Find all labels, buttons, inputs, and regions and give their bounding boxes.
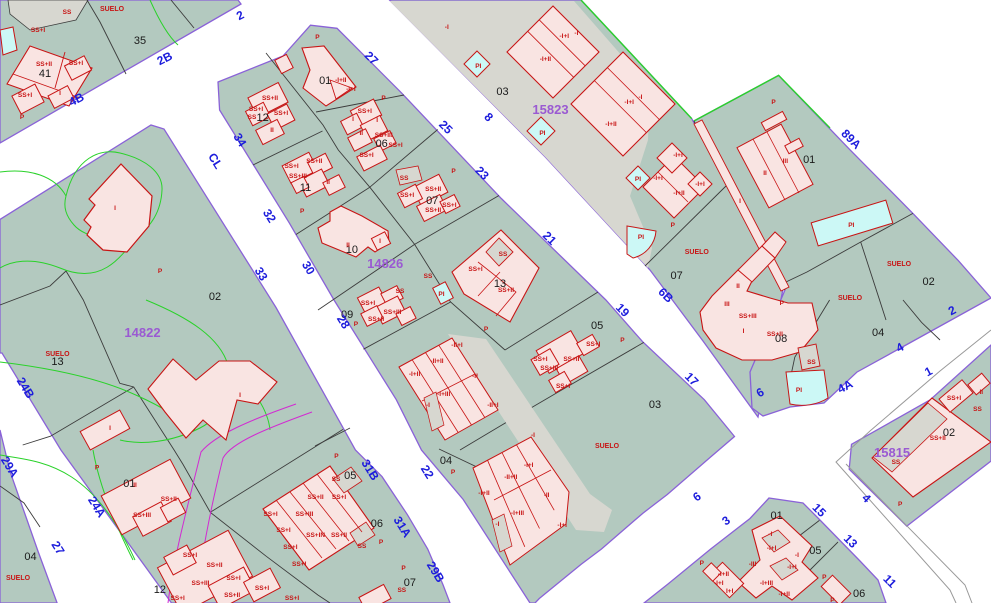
svg-text:PI: PI xyxy=(635,176,641,183)
svg-text:SS+II: SS+II xyxy=(767,331,783,338)
svg-text:-I+I: -I+I xyxy=(767,545,777,552)
svg-text:15815: 15815 xyxy=(874,445,910,460)
svg-text:-I: -I xyxy=(768,531,772,538)
svg-text:SS+II: SS+II xyxy=(498,287,514,294)
svg-text:I: I xyxy=(109,425,111,432)
svg-text:I+I: I+I xyxy=(726,588,734,595)
svg-text:P: P xyxy=(300,0,305,2)
svg-text:SS+I: SS+I xyxy=(442,202,456,209)
svg-text:06: 06 xyxy=(376,138,388,150)
svg-text:07: 07 xyxy=(670,270,682,282)
svg-text:SS+I: SS+I xyxy=(255,585,269,592)
svg-text:-I+III: -I+III xyxy=(437,391,450,398)
svg-text:SS+II: SS+II xyxy=(161,496,177,503)
svg-text:I: I xyxy=(743,328,745,335)
svg-text:6: 6 xyxy=(690,489,704,504)
svg-text:II: II xyxy=(979,389,983,396)
svg-text:SS+II: SS+II xyxy=(224,592,240,599)
svg-text:11: 11 xyxy=(880,572,899,591)
svg-text:-II+II: -II+II xyxy=(504,474,517,481)
svg-text:III: III xyxy=(724,301,730,308)
svg-text:14826: 14826 xyxy=(367,256,403,271)
svg-text:SS+I: SS+I xyxy=(332,494,346,501)
svg-text:35: 35 xyxy=(134,35,146,47)
svg-text:SS: SS xyxy=(396,288,405,295)
svg-text:SS+II: SS+II xyxy=(563,356,579,363)
svg-text:SS+I: SS+I xyxy=(249,106,263,113)
svg-text:SS+II: SS+II xyxy=(331,532,347,539)
svg-text:P: P xyxy=(771,99,776,106)
svg-text:P: P xyxy=(671,222,676,229)
svg-text:-II+II: -II+II xyxy=(430,358,443,365)
svg-text:P: P xyxy=(354,321,359,328)
svg-text:CL: CL xyxy=(205,150,225,171)
svg-text:SS+III: SS+III xyxy=(295,511,313,518)
svg-text:SUELO: SUELO xyxy=(685,249,710,256)
svg-text:SS: SS xyxy=(973,406,982,413)
svg-text:05: 05 xyxy=(344,470,356,482)
svg-text:SS+I: SS+I xyxy=(276,527,290,534)
svg-text:8: 8 xyxy=(481,110,496,125)
svg-text:3: 3 xyxy=(719,513,733,528)
svg-text:SS+III: SS+III xyxy=(540,365,558,372)
svg-text:SS+I: SS+I xyxy=(468,266,482,273)
svg-text:SS+I: SS+I xyxy=(274,110,288,117)
svg-text:I: I xyxy=(739,198,741,205)
svg-text:I: I xyxy=(59,90,61,97)
svg-text:-I: -I xyxy=(639,94,643,101)
svg-text:02: 02 xyxy=(922,276,934,288)
svg-text:PI: PI xyxy=(638,234,644,241)
svg-text:-I+III: -I+III xyxy=(511,510,524,517)
svg-text:P: P xyxy=(451,168,456,175)
svg-text:P: P xyxy=(381,95,386,102)
svg-text:-I+III: -I+III xyxy=(760,580,773,587)
svg-text:06: 06 xyxy=(853,588,865,600)
svg-text:04: 04 xyxy=(440,455,452,467)
svg-text:SS+I: SS+I xyxy=(388,142,402,149)
svg-text:I: I xyxy=(376,117,378,124)
svg-text:27: 27 xyxy=(49,539,68,558)
svg-text:-I: -I xyxy=(426,402,430,409)
svg-text:04: 04 xyxy=(24,551,36,563)
svg-text:-I+II: -I+II xyxy=(540,56,552,63)
svg-text:SUELO: SUELO xyxy=(595,443,620,450)
svg-text:-I: -I xyxy=(531,432,535,439)
svg-text:SS+I: SS+I xyxy=(226,575,240,582)
svg-text:-I+II: -I+II xyxy=(605,121,617,128)
svg-text:SUELO: SUELO xyxy=(887,261,912,268)
svg-text:P: P xyxy=(780,300,785,307)
svg-text:03: 03 xyxy=(496,86,508,98)
svg-text:-I+I: -I+I xyxy=(624,99,634,106)
svg-text:-II+I: -II+I xyxy=(451,342,463,349)
svg-text:P: P xyxy=(822,574,827,581)
svg-text:SS+III: SS+III xyxy=(192,580,210,587)
svg-text:-I+I: -I+I xyxy=(695,181,705,188)
svg-text:SS+III: SS+III xyxy=(133,512,151,519)
svg-text:06: 06 xyxy=(371,518,383,530)
svg-text:SS+I: SS+I xyxy=(285,595,299,602)
svg-text:SS+II: SS+II xyxy=(306,158,322,165)
svg-text:SS+I: SS+I xyxy=(18,92,32,99)
svg-text:SS: SS xyxy=(397,587,406,594)
svg-text:SS+I: SS+I xyxy=(556,383,570,390)
svg-text:SS: SS xyxy=(358,543,367,550)
svg-text:SUELO: SUELO xyxy=(838,295,863,302)
svg-text:SS+II: SS+II xyxy=(206,562,222,569)
svg-text:P: P xyxy=(401,565,406,572)
svg-text:SS+III: SS+III xyxy=(289,173,307,180)
svg-text:P: P xyxy=(158,268,163,275)
svg-text:SUELO: SUELO xyxy=(100,6,125,13)
svg-text:-I+II: -I+II xyxy=(409,371,421,378)
svg-text:P: P xyxy=(620,337,625,344)
svg-text:32: 32 xyxy=(260,207,279,226)
svg-text:12: 12 xyxy=(154,584,166,596)
svg-text:-I+II: -I+II xyxy=(478,490,490,497)
svg-text:-I+I: -I+I xyxy=(346,86,356,93)
svg-text:-I+I: -I+I xyxy=(714,580,724,587)
svg-text:SS: SS xyxy=(400,175,409,182)
svg-text:2: 2 xyxy=(234,8,247,24)
svg-text:-I+II: -I+II xyxy=(718,571,730,578)
svg-text:P: P xyxy=(300,208,305,215)
svg-text:SS+II: SS+II xyxy=(368,316,384,323)
svg-text:SUELO: SUELO xyxy=(6,575,31,582)
svg-text:SS+I: SS+I xyxy=(533,356,547,363)
svg-text:SS+II: SS+II xyxy=(425,186,441,193)
svg-text:P: P xyxy=(334,453,339,460)
svg-text:05: 05 xyxy=(591,320,603,332)
svg-text:13: 13 xyxy=(51,356,63,368)
svg-text:04: 04 xyxy=(872,327,884,339)
svg-text:I: I xyxy=(114,205,116,212)
svg-text:SS: SS xyxy=(332,476,341,483)
svg-text:SS: SS xyxy=(807,359,816,366)
svg-text:P: P xyxy=(700,560,705,567)
svg-text:SS+I: SS+I xyxy=(69,60,83,67)
svg-text:PI: PI xyxy=(438,291,444,298)
svg-text:SS+I: SS+I xyxy=(358,108,372,115)
svg-text:SS: SS xyxy=(63,9,72,16)
svg-text:SS: SS xyxy=(424,273,433,280)
svg-text:-I: -I xyxy=(445,24,449,31)
svg-text:II: II xyxy=(133,482,137,489)
svg-text:P: P xyxy=(484,326,489,333)
svg-text:-I+I: -I+I xyxy=(557,522,567,529)
svg-text:P: P xyxy=(342,0,347,2)
svg-text:P: P xyxy=(379,539,384,546)
svg-text:-I+II: -I+II xyxy=(335,77,347,84)
svg-text:SS+I: SS+I xyxy=(947,395,961,402)
svg-text:PI: PI xyxy=(539,130,545,137)
svg-text:SS+III: SS+III xyxy=(384,309,402,316)
svg-text:P: P xyxy=(898,501,903,508)
svg-text:P: P xyxy=(20,114,25,121)
svg-text:P: P xyxy=(315,34,320,41)
svg-text:PI: PI xyxy=(796,387,802,394)
svg-text:07: 07 xyxy=(426,195,438,207)
svg-text:SS+II: SS+II xyxy=(308,494,324,501)
svg-text:II: II xyxy=(346,242,350,249)
svg-text:-I+I: -I+I xyxy=(787,564,797,571)
svg-text:PI: PI xyxy=(848,222,854,229)
svg-text:II: II xyxy=(326,179,330,186)
svg-text:SS+I: SS+I xyxy=(283,544,297,551)
svg-text:SS+IN: SS+IN xyxy=(306,532,325,539)
svg-text:-III: -III xyxy=(749,561,757,568)
svg-text:SS: SS xyxy=(248,114,257,121)
svg-text:SS: SS xyxy=(499,251,508,258)
svg-text:SS+II: SS+II xyxy=(36,61,52,68)
svg-text:-I+I: -I+I xyxy=(673,152,683,159)
svg-text:P: P xyxy=(451,469,456,476)
svg-text:SS+I: SS+I xyxy=(284,163,298,170)
svg-text:SS+II: SS+II xyxy=(262,95,278,102)
svg-text:4: 4 xyxy=(859,491,874,506)
svg-text:01: 01 xyxy=(803,154,815,166)
svg-text:41: 41 xyxy=(39,68,51,80)
svg-text:-I: -I xyxy=(495,521,499,528)
svg-text:SS+I: SS+I xyxy=(586,341,600,348)
svg-text:II: II xyxy=(270,127,274,134)
svg-text:-II: -II xyxy=(544,492,550,499)
svg-text:SS+I: SS+I xyxy=(361,300,375,307)
svg-text:-I+I: -I+I xyxy=(560,33,570,40)
svg-text:-II+I: -II+I xyxy=(487,402,499,409)
svg-text:SS+II: SS+II xyxy=(930,435,946,442)
svg-text:1: 1 xyxy=(922,364,935,380)
svg-text:-I+II: -I+II xyxy=(673,190,685,197)
svg-text:-I+I: -I+I xyxy=(524,462,534,469)
svg-text:05: 05 xyxy=(809,545,821,557)
svg-text:PI: PI xyxy=(475,63,481,70)
svg-text:II: II xyxy=(736,283,740,290)
svg-text:01: 01 xyxy=(770,510,782,522)
svg-text:-I: -I xyxy=(795,552,799,559)
svg-text:I: I xyxy=(239,392,241,399)
svg-text:SS+I: SS+I xyxy=(400,192,414,199)
svg-text:-I: -I xyxy=(574,30,578,37)
svg-text:-II: -II xyxy=(472,373,478,380)
svg-text:SS+I: SS+I xyxy=(359,152,373,159)
svg-text:SS+I: SS+I xyxy=(263,511,277,518)
svg-text:II: II xyxy=(359,130,363,137)
svg-text:14822: 14822 xyxy=(124,325,160,340)
svg-text:02: 02 xyxy=(209,291,221,303)
svg-text:11: 11 xyxy=(300,182,311,194)
svg-text:03: 03 xyxy=(649,399,661,411)
svg-text:SS: SS xyxy=(892,459,901,466)
svg-text:I: I xyxy=(379,238,381,245)
svg-text:SS+I: SS+I xyxy=(292,561,306,568)
svg-text:P: P xyxy=(95,465,100,472)
svg-text:SS+I: SS+I xyxy=(31,27,45,34)
svg-text:III: III xyxy=(783,158,789,165)
svg-text:SS+I: SS+I xyxy=(183,552,197,559)
svg-text:II: II xyxy=(763,170,767,177)
svg-text:P: P xyxy=(830,597,835,603)
svg-text:SS+II: SS+II xyxy=(425,207,441,214)
svg-text:SS+III: SS+III xyxy=(375,132,393,139)
svg-text:-I+II: -I+II xyxy=(779,591,791,598)
svg-text:12: 12 xyxy=(256,112,268,124)
svg-text:-I+I: -I+I xyxy=(653,175,663,182)
svg-text:01: 01 xyxy=(319,75,331,87)
svg-text:SS+I: SS+I xyxy=(171,595,185,602)
svg-text:I: I xyxy=(352,116,354,123)
svg-text:SS+III: SS+III xyxy=(739,313,757,320)
svg-text:15823: 15823 xyxy=(532,102,568,117)
